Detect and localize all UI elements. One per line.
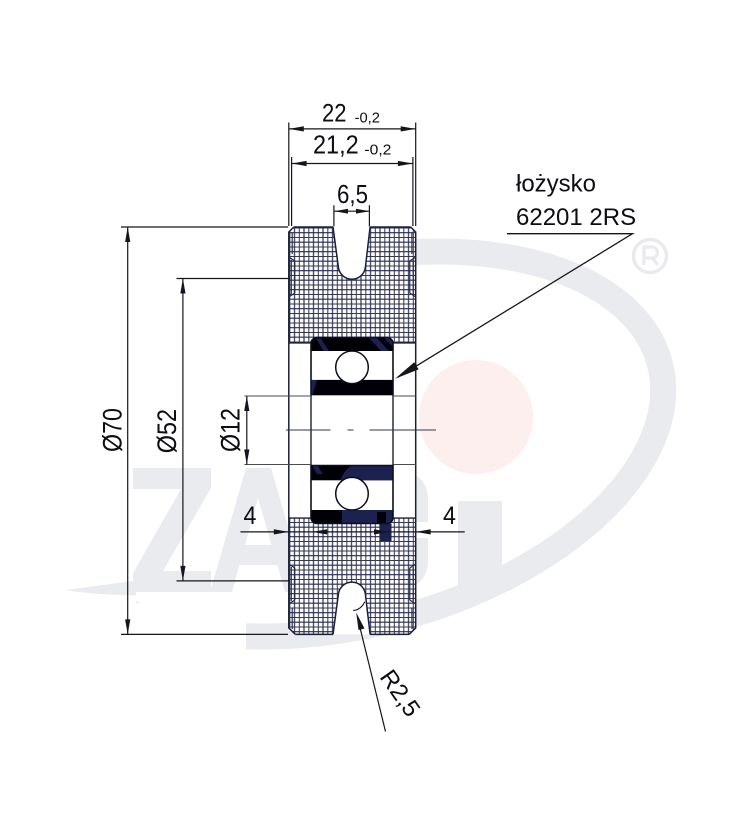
svg-text:Ø12: Ø12 bbox=[215, 408, 245, 452]
svg-text:4: 4 bbox=[244, 502, 257, 530]
svg-text:4: 4 bbox=[443, 502, 456, 530]
svg-text:-0,2: -0,2 bbox=[364, 142, 391, 158]
svg-text:6,5: 6,5 bbox=[337, 181, 368, 209]
svg-text:62201 2RS: 62201 2RS bbox=[516, 204, 636, 231]
svg-text:łożysko: łożysko bbox=[516, 170, 596, 197]
svg-text:21,2: 21,2 bbox=[313, 130, 359, 160]
svg-text:R2,5: R2,5 bbox=[374, 665, 425, 722]
svg-text:Ø52: Ø52 bbox=[152, 409, 182, 453]
svg-text:22: 22 bbox=[322, 100, 347, 128]
svg-text:-0,2: -0,2 bbox=[355, 110, 380, 126]
svg-text:Ø70: Ø70 bbox=[98, 408, 128, 452]
